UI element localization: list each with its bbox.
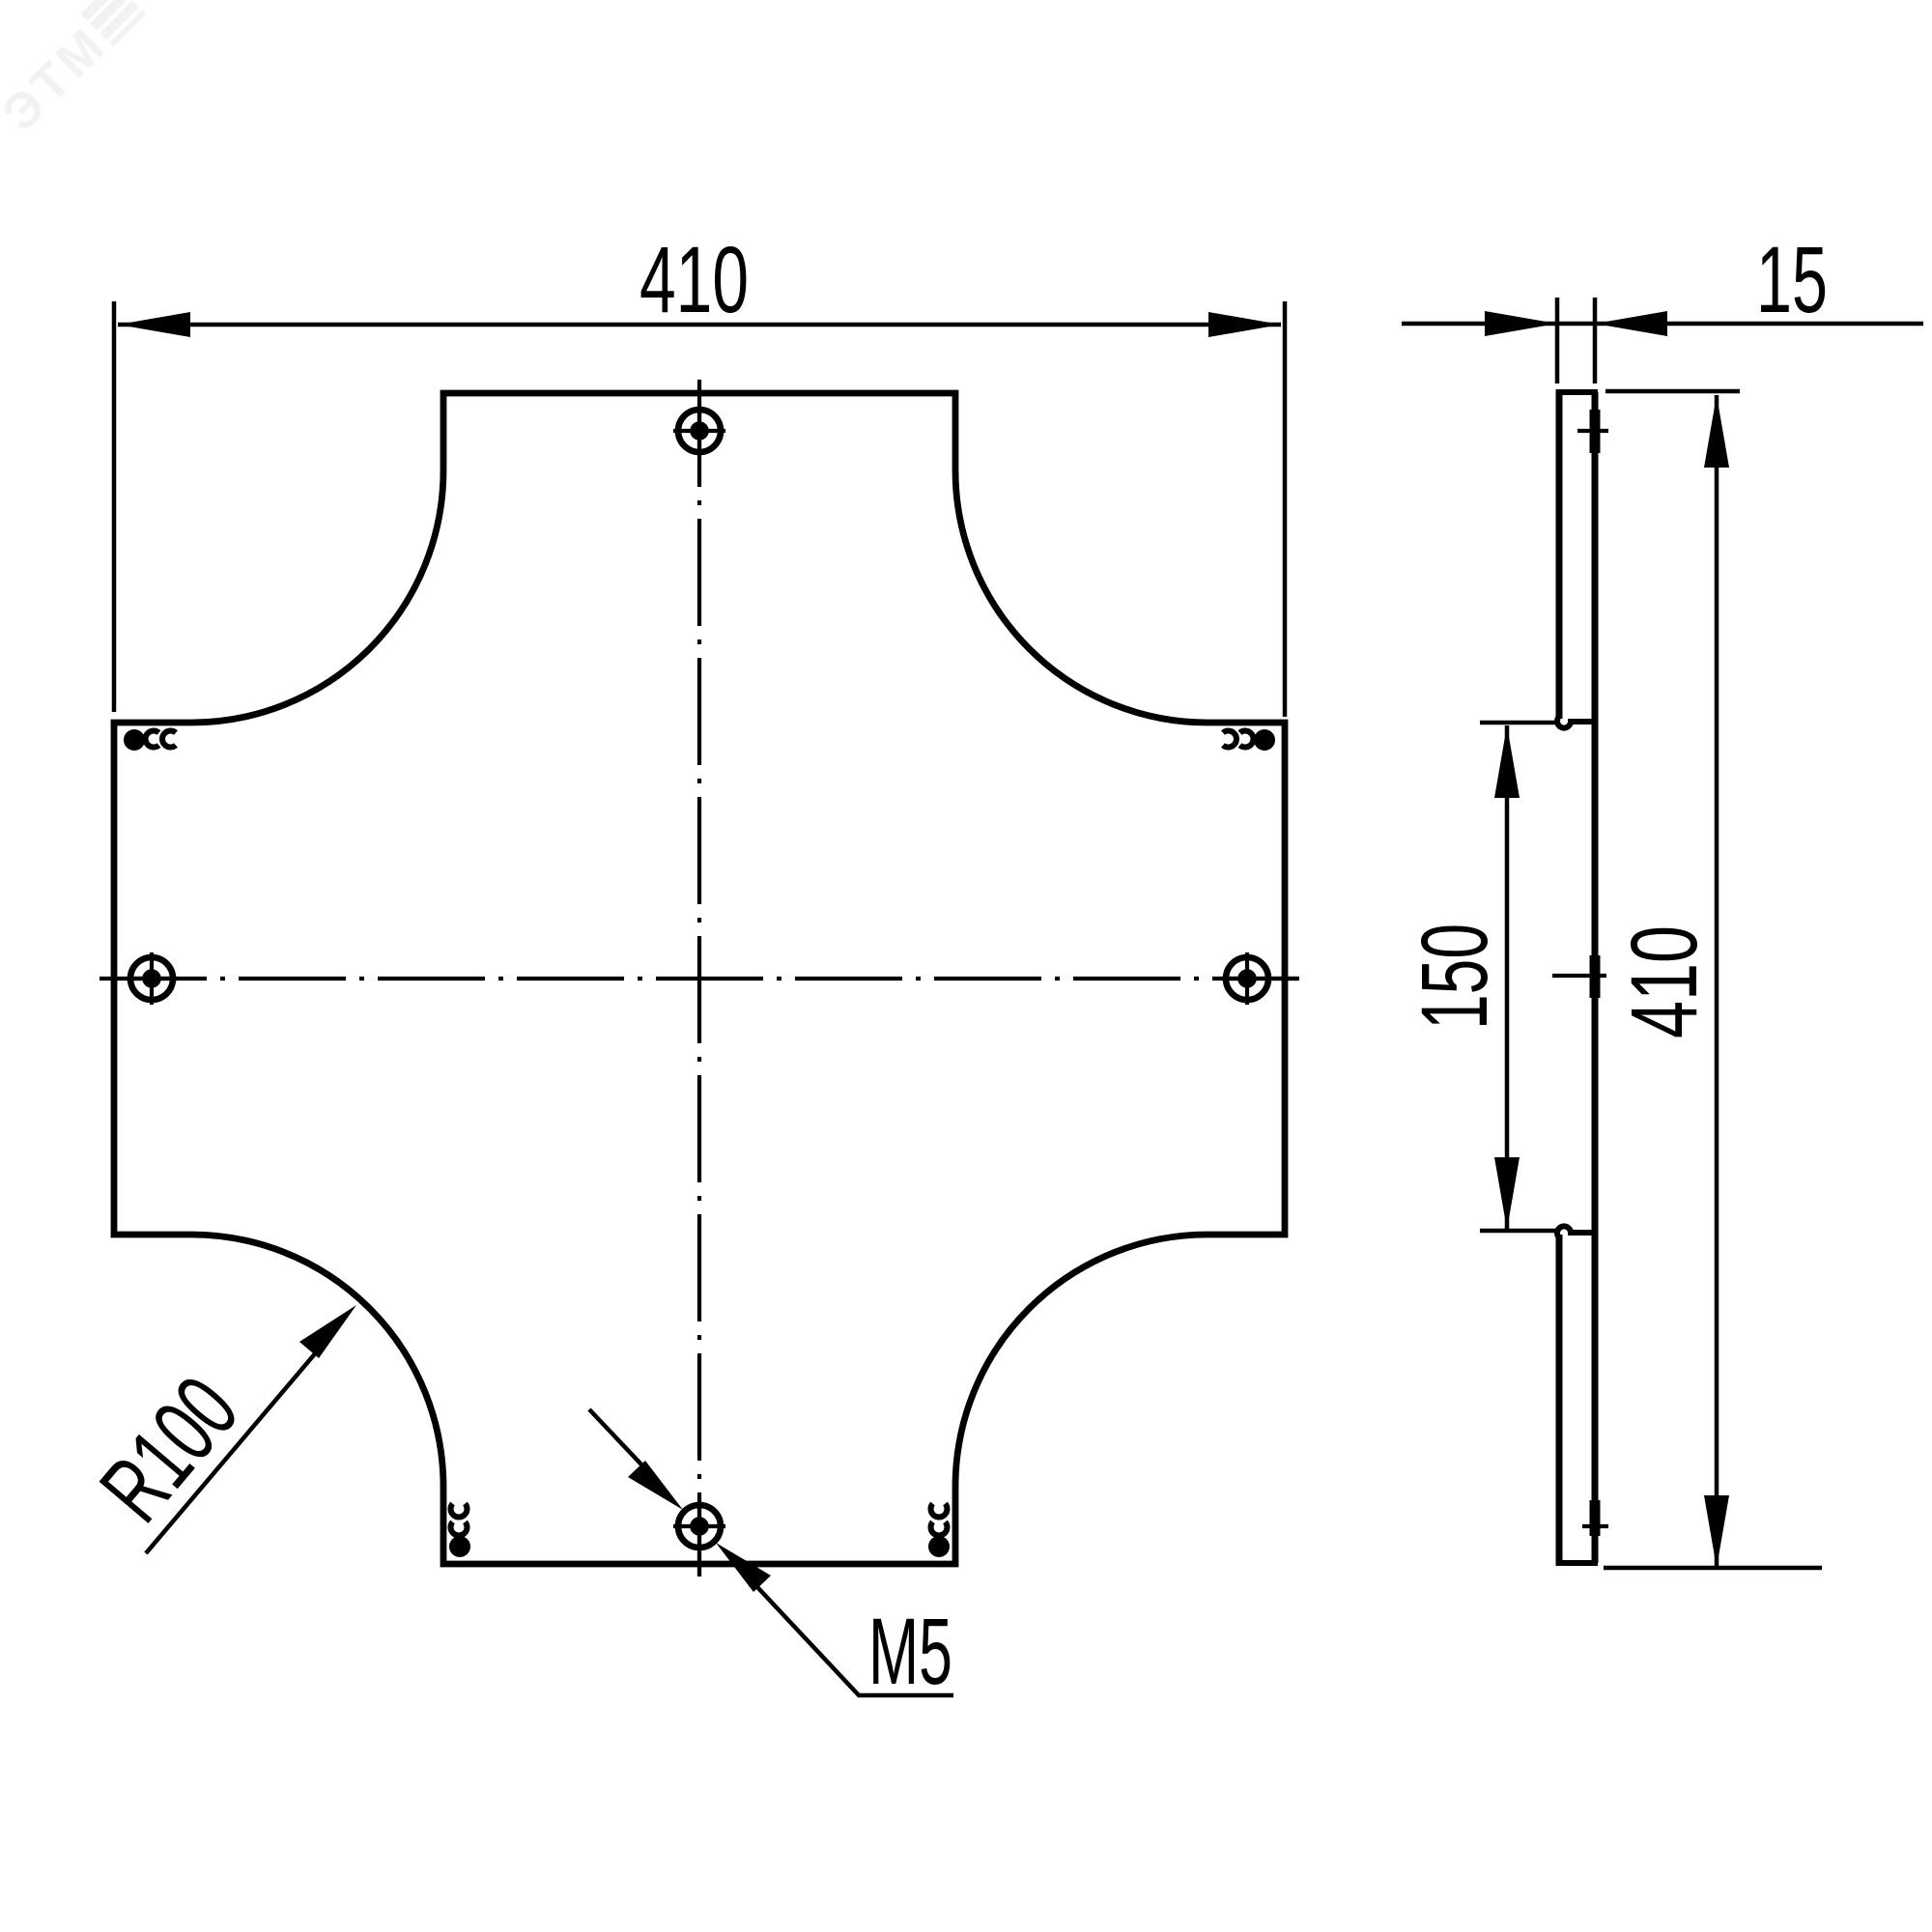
svg-text:M5: M5 bbox=[868, 1599, 952, 1704]
svg-text:410: 410 bbox=[1611, 925, 1717, 1038]
svg-text:150: 150 bbox=[1402, 923, 1507, 1030]
svg-text:15: 15 bbox=[1756, 227, 1828, 332]
svg-text:410: 410 bbox=[639, 227, 749, 332]
